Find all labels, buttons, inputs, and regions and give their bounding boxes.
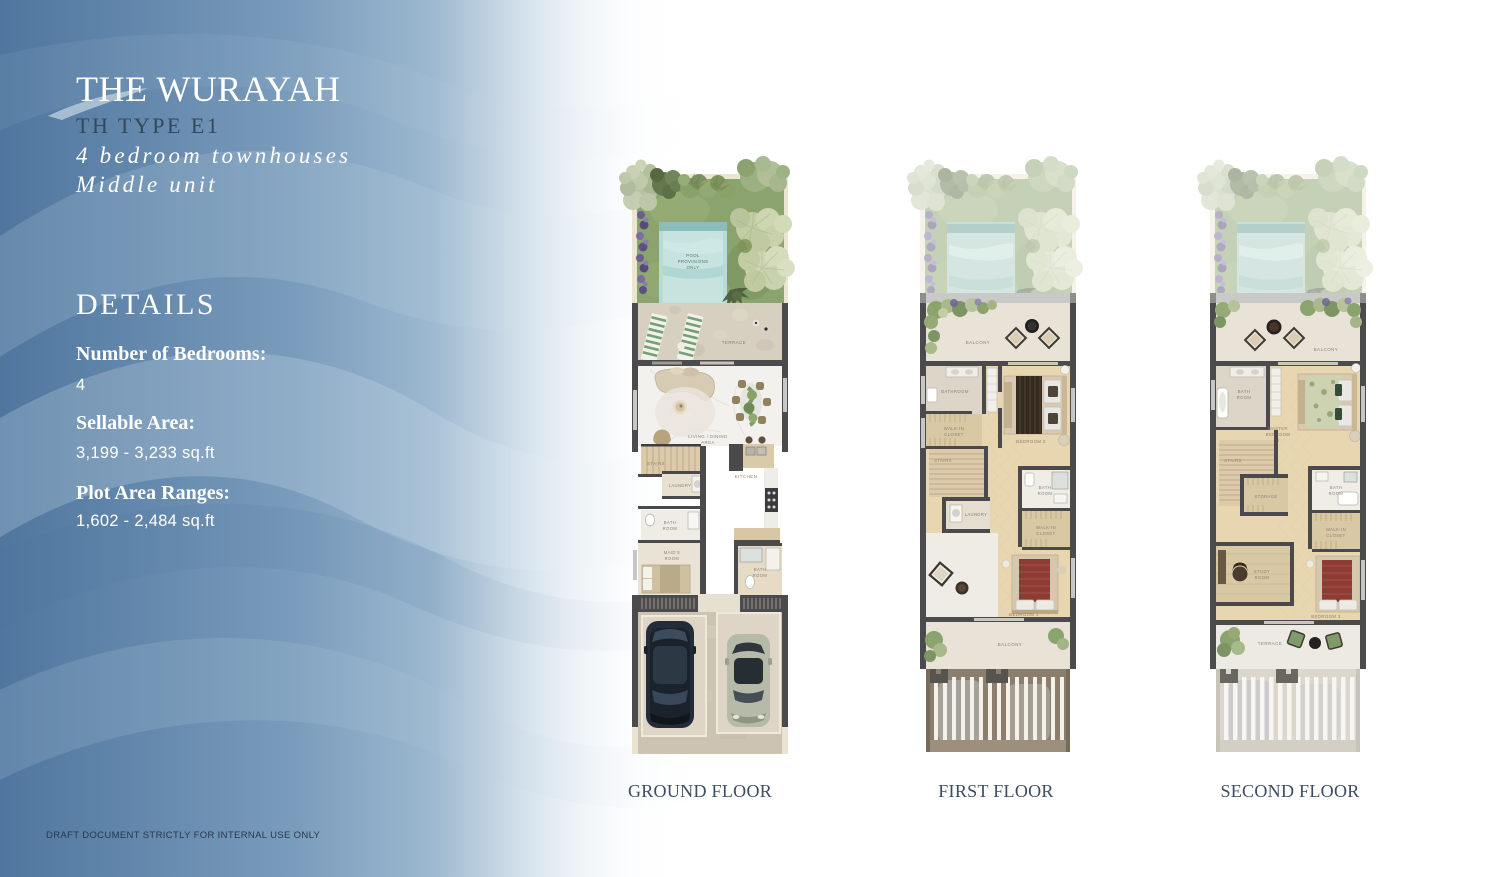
svg-text:BATH: BATH: [664, 520, 676, 525]
svg-text:STAIRS: STAIRS: [934, 458, 952, 463]
svg-text:LAUNDRY: LAUNDRY: [965, 512, 988, 517]
svg-text:TERRACE: TERRACE: [1258, 641, 1282, 646]
svg-text:TERRACE: TERRACE: [722, 340, 746, 345]
svg-text:BEDROOM 3: BEDROOM 3: [1311, 614, 1341, 619]
svg-text:LIVING / DINING: LIVING / DINING: [688, 434, 728, 439]
svg-text:BATHROOM: BATHROOM: [941, 389, 969, 394]
svg-text:ROOM: ROOM: [665, 556, 680, 561]
svg-text:BATH: BATH: [1330, 485, 1342, 490]
svg-text:BALCONY: BALCONY: [966, 340, 990, 345]
svg-text:STORAGE: STORAGE: [1254, 494, 1277, 499]
svg-text:BEDROOM: BEDROOM: [1266, 432, 1291, 437]
svg-text:KITCHEN: KITCHEN: [735, 474, 758, 479]
svg-text:MAID'S: MAID'S: [664, 550, 680, 555]
svg-text:STAIRS: STAIRS: [1224, 458, 1242, 463]
svg-text:STAIRS: STAIRS: [647, 461, 665, 466]
svg-text:ROOM: ROOM: [1255, 575, 1270, 580]
svg-text:BATH: BATH: [1238, 389, 1250, 394]
svg-text:CLOSET: CLOSET: [1326, 533, 1345, 538]
svg-text:CLOSET: CLOSET: [944, 432, 964, 437]
svg-text:BATH: BATH: [1039, 485, 1051, 490]
svg-text:LAUNDRY: LAUNDRY: [669, 483, 692, 488]
svg-text:WALK-IN: WALK-IN: [1036, 525, 1056, 530]
svg-text:AREA: AREA: [701, 440, 715, 445]
svg-text:WALK-IN: WALK-IN: [944, 426, 965, 431]
svg-text:BATH: BATH: [754, 567, 766, 572]
svg-text:CLOSET: CLOSET: [1036, 531, 1055, 536]
svg-text:ROOM: ROOM: [1329, 491, 1344, 496]
svg-text:STUDY: STUDY: [1254, 569, 1270, 574]
svg-text:WALK-IN: WALK-IN: [1326, 527, 1346, 532]
svg-text:BEDROOM 1: BEDROOM 1: [1009, 612, 1039, 617]
svg-text:ROOM: ROOM: [663, 526, 678, 531]
svg-text:BALCONY: BALCONY: [998, 642, 1022, 647]
svg-text:ROOM: ROOM: [753, 573, 768, 578]
svg-text:BALCONY: BALCONY: [1314, 347, 1338, 352]
svg-text:ROOM: ROOM: [1237, 395, 1252, 400]
svg-text:BEDROOM 2: BEDROOM 2: [1016, 439, 1046, 444]
svg-text:ROOM: ROOM: [1038, 491, 1053, 496]
